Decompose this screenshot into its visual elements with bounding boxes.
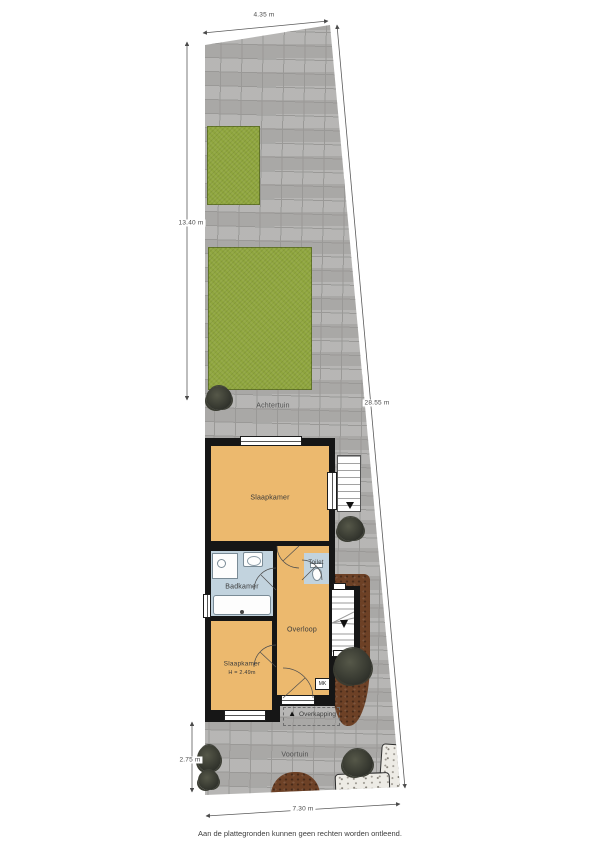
canopy-label-row: ▲ Overkapping xyxy=(288,710,336,718)
window-side-bedroom xyxy=(327,472,337,510)
canopy-triangle-icon: ▲ xyxy=(288,710,296,718)
window-bathroom xyxy=(203,594,211,618)
exterior-stairs xyxy=(337,455,361,512)
dimension-top: 4.35 m xyxy=(253,12,274,19)
bedroom-main-label: Slaapkamer xyxy=(250,495,289,502)
bedroom-small-label: Slaapkamer xyxy=(224,661,261,668)
shrub xyxy=(206,386,232,410)
lawn-small xyxy=(207,126,260,205)
shrub xyxy=(342,749,373,777)
front-garden-label: Voortuin xyxy=(281,752,308,759)
landing-label: Overloop xyxy=(287,627,317,634)
disclaimer-caption: Aan de plattegronden kunnen geen rechten… xyxy=(0,829,600,838)
shrub xyxy=(198,770,219,790)
window-front-bedroom xyxy=(224,710,266,721)
shrub xyxy=(337,517,364,541)
floorplan-page: MK 4.35 m 13.40 m 28.55 m xyxy=(0,0,600,848)
shower-fixture xyxy=(212,553,238,579)
toilet-label: Toilet xyxy=(308,560,323,566)
dimension-left-upper: 13.40 m xyxy=(177,220,206,227)
stairs-down-arrow-icon xyxy=(346,502,354,509)
dimension-left-lower: 2.75 m xyxy=(177,757,202,764)
window-back xyxy=(240,436,302,446)
shrub xyxy=(334,648,372,685)
shower-head-icon xyxy=(217,559,226,568)
bedroom-small-height-label: H = 2.49m xyxy=(228,670,255,676)
sink-fixture xyxy=(243,552,263,567)
canopy-label: Overkapping xyxy=(299,711,336,718)
gravel-strip-vertical xyxy=(378,743,405,796)
stairwell-window-top xyxy=(333,583,346,590)
bathtub-fixture xyxy=(213,595,271,615)
dimension-bottom: 7.30 m xyxy=(290,806,315,813)
lawn-large xyxy=(208,247,312,390)
back-garden-label: Achtertuin xyxy=(256,403,290,410)
meter-box-label: MK xyxy=(319,681,327,687)
sink-basin-icon xyxy=(247,556,261,566)
front-door xyxy=(281,695,315,705)
bathroom-label: Badkamer xyxy=(225,584,259,591)
planting-bed-front xyxy=(271,772,320,795)
dimension-right: 28.55 m xyxy=(363,400,392,407)
room-bedroom-main xyxy=(211,446,329,541)
bathtub-faucet-icon xyxy=(240,610,244,614)
meter-box: MK xyxy=(315,678,330,690)
interior-stairs xyxy=(332,590,354,656)
